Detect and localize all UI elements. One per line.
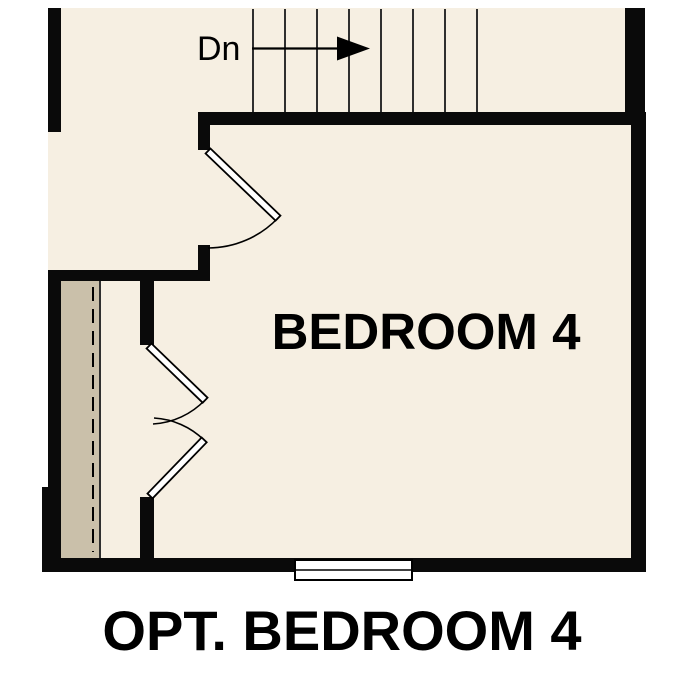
stair-treads	[253, 9, 477, 112]
bedroom-door	[206, 148, 281, 248]
room-label-bedroom4: BEDROOM 4	[226, 304, 626, 360]
stairs-down-label: Dn	[197, 30, 240, 68]
closet-door-lower	[147, 418, 206, 498]
window	[295, 560, 412, 580]
floorplan-canvas: Dn BEDROOM 4 OPT. BEDROOM 4	[0, 0, 687, 687]
plan-caption: OPT. BEDROOM 4	[92, 600, 592, 662]
right-arrow-icon	[252, 37, 370, 61]
closet-door-upper	[147, 343, 208, 424]
